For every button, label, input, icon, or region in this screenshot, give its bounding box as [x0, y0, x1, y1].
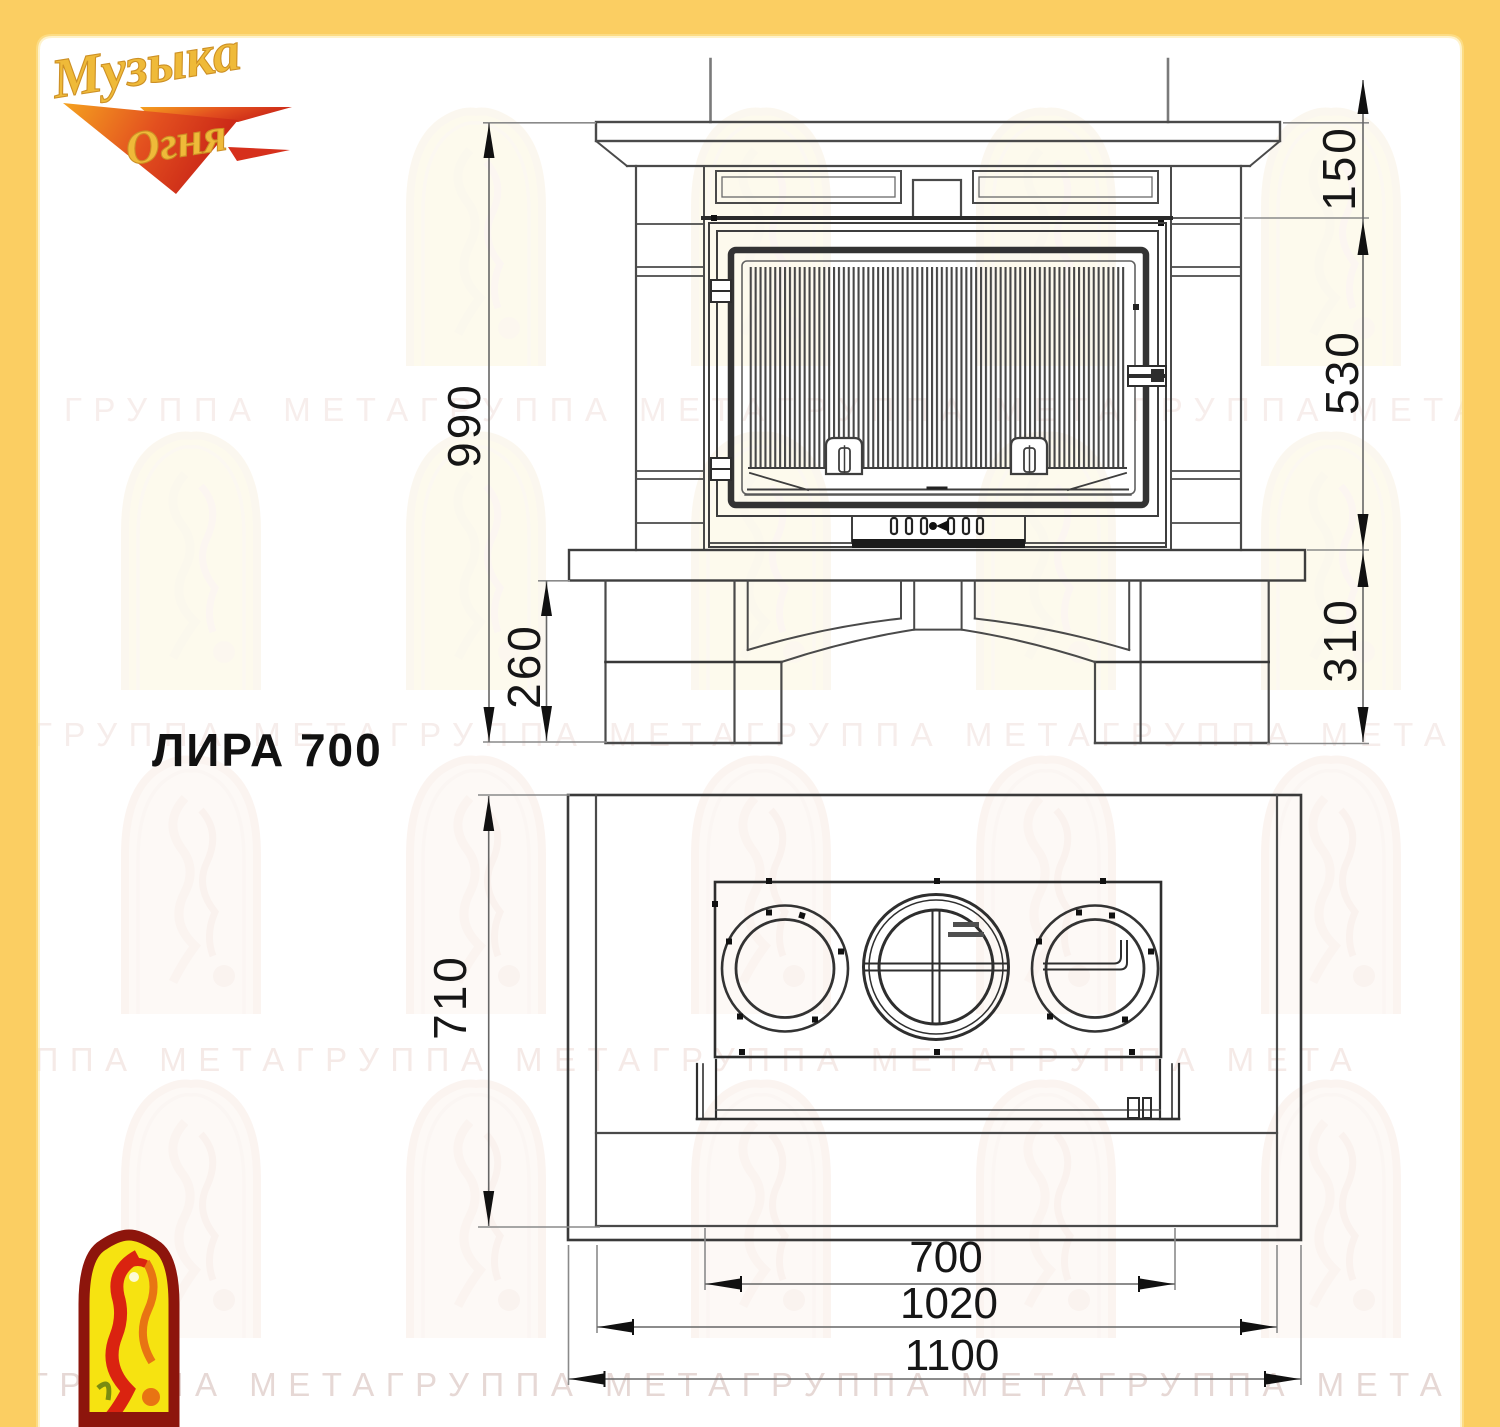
svg-text:1100: 1100 — [905, 1331, 1000, 1380]
svg-text:260: 260 — [498, 623, 550, 709]
svg-text:990: 990 — [438, 382, 490, 468]
svg-text:700: 700 — [909, 1233, 982, 1282]
svg-text:150: 150 — [1313, 125, 1365, 211]
svg-text:530: 530 — [1316, 329, 1368, 415]
svg-text:ГРУППА МЕТАГРУППА МЕТАГРУППА М: ГРУППА МЕТАГРУППА МЕТАГРУППА МЕТАГРУППА … — [0, 1041, 1363, 1078]
svg-text:ЛИРА 700: ЛИРА 700 — [152, 724, 383, 776]
svg-text:1020: 1020 — [900, 1279, 998, 1328]
svg-text:ГРУППА МЕТАГРУППА МЕТАГРУППА М: ГРУППА МЕТАГРУППА МЕТАГРУППА МЕТАГРУППА … — [30, 1366, 1453, 1403]
svg-text:710: 710 — [424, 954, 476, 1040]
svg-text:310: 310 — [1314, 597, 1366, 683]
